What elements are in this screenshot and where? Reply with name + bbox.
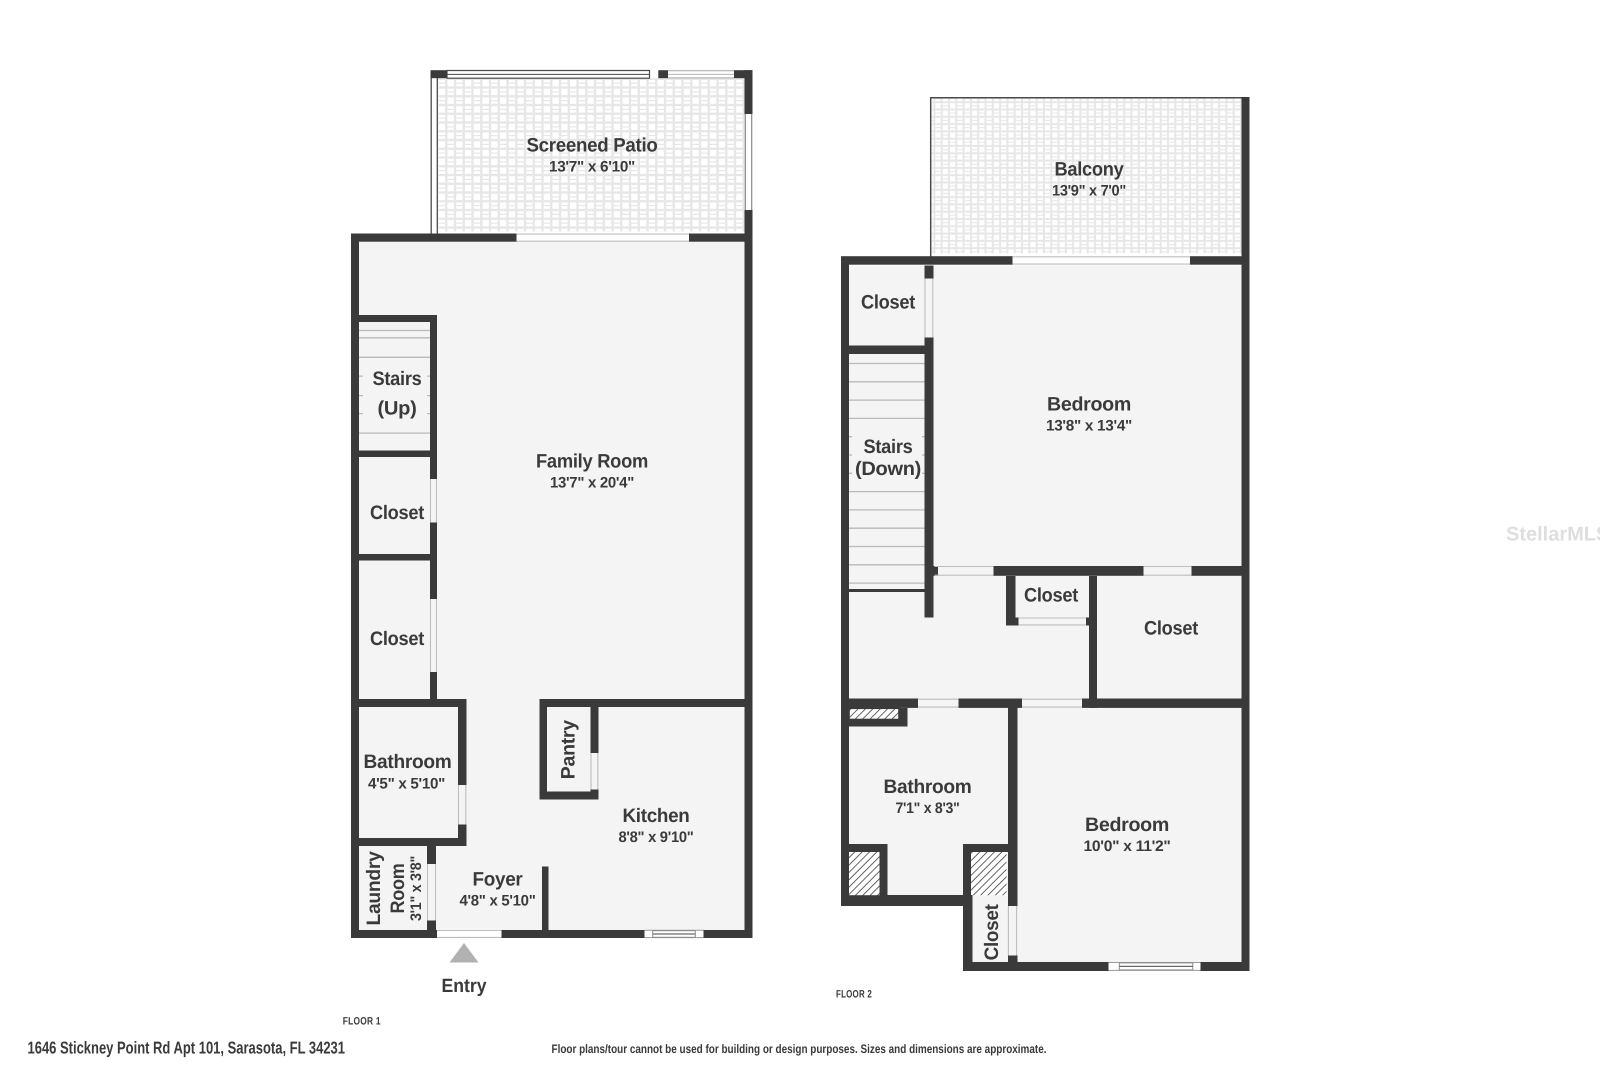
svg-text:Closet: Closet	[370, 502, 425, 524]
svg-text:13'7" x 6'10": 13'7" x 6'10"	[549, 158, 635, 175]
svg-text:Screened Patio: Screened Patio	[527, 135, 658, 157]
svg-text:Balcony: Balcony	[1055, 159, 1124, 181]
svg-text:Room: Room	[387, 864, 409, 914]
svg-text:3'1" x 3'8": 3'1" x 3'8"	[408, 856, 425, 921]
svg-text:1646 Stickney Point Rd Apt 101: 1646 Stickney Point Rd Apt 101, Sarasota…	[28, 1038, 346, 1058]
svg-text:13'8" x 13'4": 13'8" x 13'4"	[1046, 417, 1132, 434]
svg-text:FLOOR 1: FLOOR 1	[343, 1016, 381, 1028]
svg-text:FLOOR 2: FLOOR 2	[836, 989, 872, 1001]
svg-text:(Up): (Up)	[378, 398, 417, 420]
svg-text:Closet: Closet	[1024, 585, 1079, 607]
svg-text:4'5" x 5'10": 4'5" x 5'10"	[368, 776, 445, 793]
svg-text:Bathroom: Bathroom	[364, 751, 452, 773]
svg-text:7'1" x 8'3": 7'1" x 8'3"	[896, 800, 960, 817]
svg-text:8'8" x 9'10": 8'8" x 9'10"	[619, 829, 694, 846]
svg-text:Pantry: Pantry	[558, 720, 580, 779]
svg-text:10'0" x 11'2": 10'0" x 11'2"	[1084, 838, 1171, 855]
svg-text:Stairs: Stairs	[373, 368, 422, 390]
svg-text:Laundry: Laundry	[363, 851, 385, 925]
svg-text:13'7" x 20'4": 13'7" x 20'4"	[550, 474, 634, 491]
svg-text:Closet: Closet	[1144, 618, 1199, 640]
svg-text:Closet: Closet	[981, 904, 1003, 961]
svg-text:Bedroom: Bedroom	[1047, 394, 1131, 416]
svg-text:Closet: Closet	[370, 628, 425, 650]
svg-text:Kitchen: Kitchen	[623, 805, 690, 827]
svg-text:Closet: Closet	[861, 292, 916, 314]
svg-text:Family Room: Family Room	[536, 451, 648, 473]
svg-text:Bedroom: Bedroom	[1085, 814, 1169, 836]
svg-text:(Down): (Down)	[855, 458, 921, 480]
svg-text:13'9" x 7'0": 13'9" x 7'0"	[1052, 183, 1126, 200]
svg-text:Foyer: Foyer	[473, 869, 524, 891]
svg-text:Entry: Entry	[442, 976, 487, 997]
svg-text:4'8" x 5'10": 4'8" x 5'10"	[460, 893, 536, 910]
svg-text:Floor plans/tour cannot be use: Floor plans/tour cannot be used for buil…	[552, 1042, 1047, 1056]
svg-text:Bathroom: Bathroom	[884, 776, 972, 798]
svg-text:Stairs: Stairs	[864, 436, 913, 458]
svg-text:StellarMLS: StellarMLS	[1506, 524, 1600, 546]
